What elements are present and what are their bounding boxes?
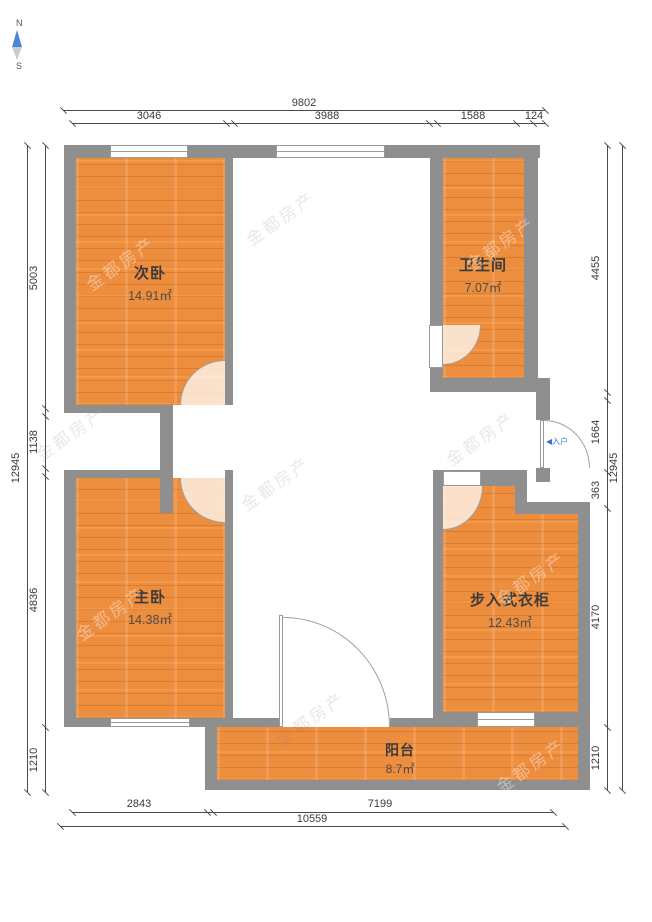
wall-segment bbox=[160, 405, 173, 513]
room-area: 8.7㎡ bbox=[350, 760, 450, 777]
dimension-label: 1210 bbox=[28, 738, 40, 782]
entrance-label: ◀入户 bbox=[546, 436, 568, 447]
dimension-label: 7199 bbox=[368, 798, 392, 810]
window bbox=[110, 718, 190, 727]
wall-segment bbox=[64, 470, 76, 727]
room-label-yangtai: 阳台 8.7㎡ bbox=[350, 740, 450, 777]
window bbox=[276, 145, 385, 158]
room-area: 7.07㎡ bbox=[433, 277, 533, 296]
watermark: 金都房产 bbox=[235, 449, 315, 515]
dimension-label: 2843 bbox=[127, 798, 151, 810]
wall-segment bbox=[430, 378, 550, 392]
wall-segment bbox=[390, 718, 433, 727]
dimension-label: 4455 bbox=[590, 246, 602, 290]
room-label-yigui: 步入式衣柜 12.43㎡ bbox=[445, 589, 575, 631]
wall-segment bbox=[433, 486, 443, 712]
room-name: 阳台 bbox=[350, 740, 450, 760]
wall-segment bbox=[230, 718, 280, 727]
room-name: 次卧 bbox=[100, 262, 200, 283]
dimension-label: 10559 bbox=[297, 813, 328, 825]
wall-segment bbox=[385, 145, 540, 158]
compass-needle-icon bbox=[12, 30, 22, 47]
room-label-weishengjian: 卫生间 7.07㎡ bbox=[433, 254, 533, 296]
dimension-label: 12945 bbox=[608, 446, 620, 490]
dimension-label: 1588 bbox=[461, 110, 485, 122]
dimension-label: 4170 bbox=[590, 595, 602, 639]
dimension-label: 363 bbox=[590, 468, 602, 512]
window bbox=[110, 145, 188, 158]
wall-segment bbox=[536, 392, 550, 420]
room-label-zhuwo: 主卧 14.38㎡ bbox=[100, 586, 200, 628]
floor-plan: N S ◀入户 bbox=[0, 0, 652, 922]
wall-segment bbox=[64, 405, 162, 413]
dimension-line bbox=[622, 145, 623, 790]
room-name: 步入式衣柜 bbox=[445, 589, 575, 610]
wall-segment bbox=[515, 502, 590, 514]
wall-segment bbox=[64, 145, 76, 412]
wall-segment bbox=[188, 145, 276, 158]
wall-segment bbox=[578, 727, 590, 780]
dimension-line bbox=[27, 145, 28, 792]
wall-segment bbox=[205, 780, 590, 790]
room-area: 14.91㎡ bbox=[100, 285, 200, 304]
dimension-label: 124 bbox=[525, 110, 543, 122]
dimension-line bbox=[72, 123, 545, 124]
dimension-label: 3046 bbox=[137, 110, 161, 122]
watermark: 金都房产 bbox=[240, 184, 320, 250]
compass-north-label: N bbox=[16, 18, 23, 28]
door-leaf-yigui bbox=[443, 471, 481, 486]
wall-segment bbox=[536, 468, 550, 482]
room-name: 卫生间 bbox=[433, 254, 533, 275]
dimension-label: 3988 bbox=[315, 110, 339, 122]
compass-south-label: S bbox=[16, 61, 22, 71]
watermark: 金都房产 bbox=[440, 404, 520, 470]
wall-segment bbox=[64, 470, 162, 478]
dimension-label: 12945 bbox=[10, 446, 22, 490]
dimension-label: 1664 bbox=[590, 410, 602, 454]
room-name: 主卧 bbox=[100, 586, 200, 607]
dimension-label: 5003 bbox=[28, 256, 40, 300]
door-leaf-weishengjian bbox=[429, 325, 443, 368]
wall-segment bbox=[225, 470, 233, 718]
wall-segment bbox=[578, 514, 590, 714]
dimension-label: 1138 bbox=[28, 420, 40, 464]
dimension-label: 9802 bbox=[292, 97, 316, 109]
room-label-ciwo: 次卧 14.91㎡ bbox=[100, 262, 200, 304]
dimension-label: 4836 bbox=[28, 578, 40, 622]
wall-segment bbox=[225, 158, 233, 405]
room-area: 14.38㎡ bbox=[100, 609, 200, 628]
window bbox=[477, 712, 535, 727]
balcony-door-arc bbox=[283, 617, 390, 727]
dimension-label: 1210 bbox=[590, 736, 602, 780]
compass-needle-tail-icon bbox=[12, 47, 22, 60]
dimension-line bbox=[60, 826, 565, 827]
room-area: 12.43㎡ bbox=[445, 612, 575, 631]
